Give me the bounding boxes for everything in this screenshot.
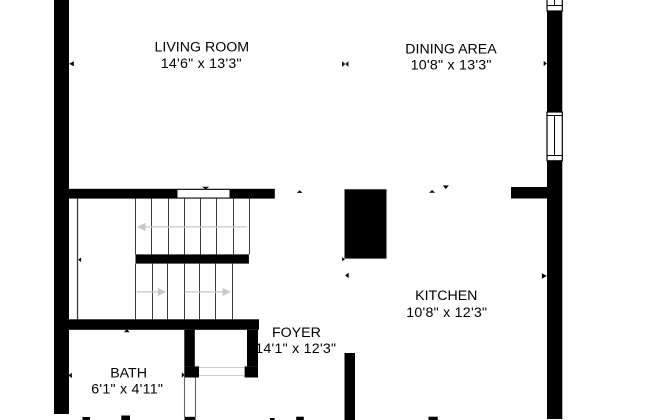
svg-text:14'6" x 13'3": 14'6" x 13'3" xyxy=(161,56,242,72)
svg-text:14'1" x 12'3": 14'1" x 12'3" xyxy=(255,341,336,357)
svg-text:FOYER: FOYER xyxy=(272,325,321,341)
svg-text:BATH: BATH xyxy=(110,366,147,382)
svg-text:DINING AREA: DINING AREA xyxy=(405,42,497,58)
svg-text:LIVING ROOM: LIVING ROOM xyxy=(154,40,249,56)
svg-text:KITCHEN: KITCHEN xyxy=(415,288,477,304)
svg-text:6'1" x 4'11": 6'1" x 4'11" xyxy=(91,381,163,397)
svg-text:10'8" x 13'3": 10'8" x 13'3" xyxy=(411,58,492,74)
svg-text:10'8" x 12'3": 10'8" x 12'3" xyxy=(406,305,487,321)
